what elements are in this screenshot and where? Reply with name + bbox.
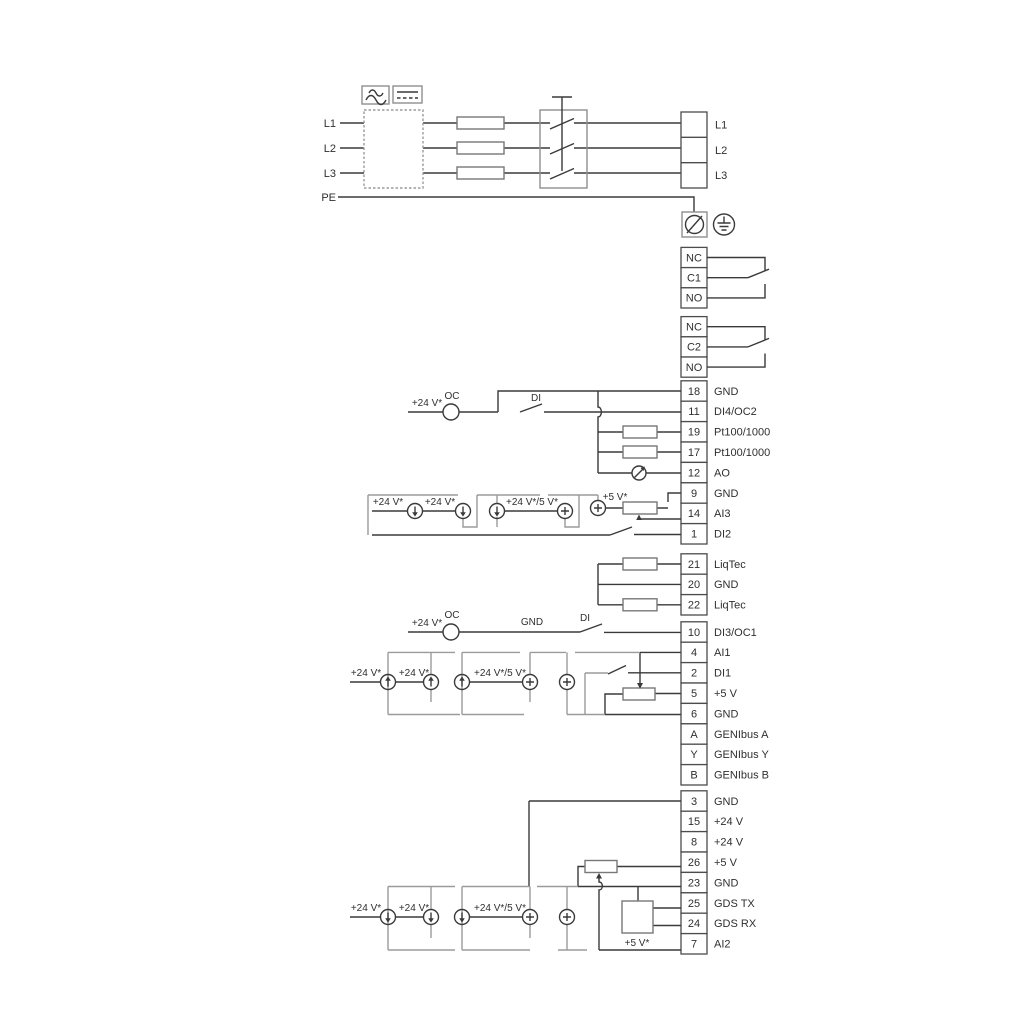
terminal-row: 1 DI2 <box>681 524 731 544</box>
terminal-row: 3 GND <box>681 791 739 811</box>
terminal-row: 2 DI1 <box>681 663 731 683</box>
terminal-number: A <box>690 729 698 741</box>
main-switch <box>540 97 587 188</box>
power-wires <box>338 123 694 212</box>
terminal-label: GND <box>714 877 739 889</box>
section1-di-blade <box>520 404 542 412</box>
power-input-section: L1 L2 L3 PE L1 <box>321 86 734 237</box>
input-label-pe: PE <box>321 192 336 204</box>
terminal-label: GDS RX <box>714 918 757 930</box>
ac-symbol-icon <box>362 86 389 105</box>
terminal-row: 18 GND <box>681 381 739 401</box>
terminal-number: 19 <box>688 427 700 439</box>
current-source-icon <box>490 504 505 519</box>
current-source-icon <box>408 504 423 519</box>
power-terminal-block: L1 L2 L3 <box>681 112 727 188</box>
relay2-block: NC C2 NO <box>681 317 769 378</box>
pt100-resistor-1 <box>623 426 657 438</box>
terminal-number: 18 <box>688 386 700 398</box>
terminal-number: 20 <box>688 579 700 591</box>
s2-src45-label: +24 V*/5 V* <box>474 668 526 679</box>
s1-oc-label: OC <box>445 391 460 402</box>
converter-dashed-box <box>364 110 423 188</box>
terminal-number: 5 <box>691 688 697 700</box>
section2-circuit: +24 V* OC GND DI +24 V* +24 V* +24 V*/5 … <box>350 610 681 715</box>
terminal-row: 17 Pt100/1000 <box>681 442 770 462</box>
terminal-label: LiqTec <box>714 559 746 571</box>
terminal-label: GND <box>714 488 739 500</box>
terminal-label: GND <box>714 386 739 398</box>
fuse-l1 <box>457 117 504 129</box>
terminal-row: 24 GDS RX <box>681 913 757 933</box>
relay2-nc: NC <box>686 322 702 334</box>
s2-oc-label: OC <box>445 610 460 621</box>
terminal-number: 11 <box>688 406 699 418</box>
terminal-number: 3 <box>691 796 697 808</box>
terminal-number: 15 <box>688 816 700 828</box>
terminal-row: 21 LiqTec <box>681 554 746 574</box>
s1-di-label: DI <box>531 393 541 404</box>
s3-src2-label: +24 V* <box>399 903 429 914</box>
terminal-number: B <box>690 770 697 782</box>
gds-sensor-box <box>622 901 653 933</box>
terminal-number: 1 <box>691 529 697 541</box>
terminal-row: 15 +24 V <box>681 811 744 831</box>
s3-v5-label: +5 V* <box>625 938 650 949</box>
terminal-label: GENIbus A <box>714 729 769 741</box>
output-label-l2: L2 <box>715 145 727 157</box>
terminal-row: 22 LiqTec <box>681 595 746 615</box>
terminal-number: 8 <box>691 837 697 849</box>
s1-src1-label: +24 V* <box>373 497 403 508</box>
s3-src1-label: +24 V* <box>351 903 381 914</box>
output-label-l1: L1 <box>715 120 727 132</box>
terminal-label: AI1 <box>714 647 731 659</box>
terminal-row: 6 GND <box>681 703 739 723</box>
dc-symbol-icon <box>393 86 422 103</box>
relay1-contact <box>707 258 769 298</box>
pe-screw-terminal-icon <box>682 212 707 237</box>
terminal-row: 10 DI3/OC1 <box>681 622 757 642</box>
input-label-l1: L1 <box>324 118 336 130</box>
terminal-number: 9 <box>691 488 697 500</box>
terminal-label: GND <box>714 579 739 591</box>
s2-di-label: DI <box>580 613 590 624</box>
terminal-label: DI2 <box>714 529 731 541</box>
relay1-no: NO <box>686 293 703 305</box>
terminal-row: 12 AO <box>681 462 730 482</box>
terminal-label: DI1 <box>714 668 731 680</box>
section3-circuit: +5 V* +24 V* +24 V* +24 V*/5 V* <box>350 801 681 950</box>
voltage-source-icon <box>560 675 575 690</box>
potentiometer <box>623 683 655 700</box>
terminal-label: AI3 <box>714 508 731 520</box>
terminal-label: AI2 <box>714 939 731 951</box>
terminal-label: +24 V <box>714 816 744 828</box>
open-collector-icon <box>443 404 459 420</box>
terminal-label: GENIbus B <box>714 770 769 782</box>
terminal-row: 9 GND <box>681 483 739 503</box>
current-source-icon <box>456 504 471 519</box>
s2-v24-label: +24 V* <box>412 618 442 629</box>
terminal-group4: 3 GND 15 +24 V 8 +24 V 26 +5 V 23 GND 25… <box>681 791 757 954</box>
pt100-resistor-2 <box>623 446 657 458</box>
terminal-label: DI3/OC1 <box>714 627 757 639</box>
terminal-row: 7 AI2 <box>681 934 731 954</box>
terminal-group1: 18 GND 11 DI4/OC2 19 Pt100/1000 17 Pt100… <box>681 381 770 544</box>
terminal-row: 23 GND <box>681 872 739 892</box>
s1-src45-label: +24 V*/5 V* <box>506 497 558 508</box>
terminal-label: LiqTec <box>714 600 746 612</box>
terminal-number: 7 <box>691 939 697 951</box>
analog-output-meter-icon <box>632 466 646 480</box>
terminal-number: 6 <box>691 708 697 720</box>
terminal-number: 23 <box>688 877 700 889</box>
terminal-number: 26 <box>688 857 700 869</box>
terminal-label: GDS TX <box>714 898 755 910</box>
terminal-label: Pt100/1000 <box>714 427 770 439</box>
input-label-l3: L3 <box>324 168 336 180</box>
terminal-number: 22 <box>688 600 700 612</box>
terminal-label: +5 V <box>714 688 738 700</box>
terminal-row: 20 GND <box>681 574 739 594</box>
relay2-contact <box>707 327 769 367</box>
wiring-diagram-svg: L1 L2 L3 PE L1 <box>0 0 1024 1024</box>
ground-icon <box>714 214 735 235</box>
s1-v24-label: +24 V* <box>412 398 442 409</box>
section3-brackets <box>388 887 587 951</box>
terminal-label: GND <box>714 708 739 720</box>
terminal-row: 8 +24 V <box>681 832 744 852</box>
terminal-row: B GENIbus B <box>681 765 769 785</box>
s2-src2-label: +24 V* <box>399 668 429 679</box>
s1-src2-label: +24 V* <box>425 497 455 508</box>
liqtec-resistor-1 <box>623 558 657 570</box>
fuse-l2 <box>457 142 504 154</box>
terminal-row: A GENIbus A <box>681 724 769 744</box>
section2-di1-blade <box>608 666 626 675</box>
terminal-row: 26 +5 V <box>681 852 738 872</box>
s3-src45-label: +24 V*/5 V* <box>474 903 526 914</box>
terminal-group2: 21 LiqTec 20 GND 22 LiqTec <box>598 554 746 615</box>
relay1-block: NC C1 NO <box>681 247 769 308</box>
terminal-row: 4 AI1 <box>681 642 731 662</box>
relay2-c: C2 <box>687 342 701 354</box>
output-label-l3: L3 <box>715 170 727 182</box>
open-collector-icon <box>443 624 459 640</box>
relay2-no: NO <box>686 362 703 374</box>
section1-circuit: +24 V* OC DI +24 V* +24 V* +24 V*/5 V* +… <box>368 391 681 535</box>
fuse-l3 <box>457 167 504 179</box>
terminal-label: +5 V <box>714 857 738 869</box>
terminal-group3: 10 DI3/OC1 4 AI1 2 DI1 5 +5 V 6 GND A GE… <box>681 622 769 785</box>
liqtec-resistor-2 <box>623 599 657 611</box>
potentiometer <box>623 502 657 520</box>
voltage-source-icon <box>558 504 573 519</box>
terminal-number: 14 <box>688 508 700 520</box>
terminal-row: 11 DI4/OC2 <box>681 401 757 421</box>
terminal-label: GENIbus Y <box>714 749 769 761</box>
relay1-c: C1 <box>687 273 701 285</box>
terminal-label: AO <box>714 467 730 479</box>
terminal-number: 17 <box>688 447 700 459</box>
terminal-label: DI4/OC2 <box>714 406 757 418</box>
terminal-row: 5 +5 V <box>681 683 738 703</box>
terminal-number: Y <box>690 749 698 761</box>
relay1-nc: NC <box>686 252 702 264</box>
terminal-row: Y GENIbus Y <box>681 744 769 764</box>
terminal-number: 21 <box>688 559 700 571</box>
s2-src1-label: +24 V* <box>351 668 381 679</box>
terminal-label: Pt100/1000 <box>714 447 770 459</box>
terminal-number: 2 <box>691 668 697 680</box>
section2-di-blade <box>580 624 602 632</box>
terminal-label: +24 V <box>714 837 744 849</box>
section2-brackets <box>388 652 640 714</box>
terminal-row: 19 Pt100/1000 <box>681 422 770 442</box>
terminal-row: 25 GDS TX <box>681 893 755 913</box>
terminal-number: 24 <box>688 918 700 930</box>
voltage-source-icon <box>560 910 575 925</box>
terminal-number: 25 <box>688 898 700 910</box>
terminal-label: GND <box>714 796 739 808</box>
terminal-number: 12 <box>688 467 700 479</box>
terminal-number: 10 <box>688 627 700 639</box>
terminal-row: 14 AI3 <box>681 503 731 523</box>
potentiometer <box>585 861 617 879</box>
input-label-l2: L2 <box>324 143 336 155</box>
section1-di2-blade <box>610 527 632 535</box>
wiring-diagram: L1 L2 L3 PE L1 <box>0 0 1024 1024</box>
terminal-number: 4 <box>691 647 697 659</box>
s2-gnd-label: GND <box>521 617 543 628</box>
